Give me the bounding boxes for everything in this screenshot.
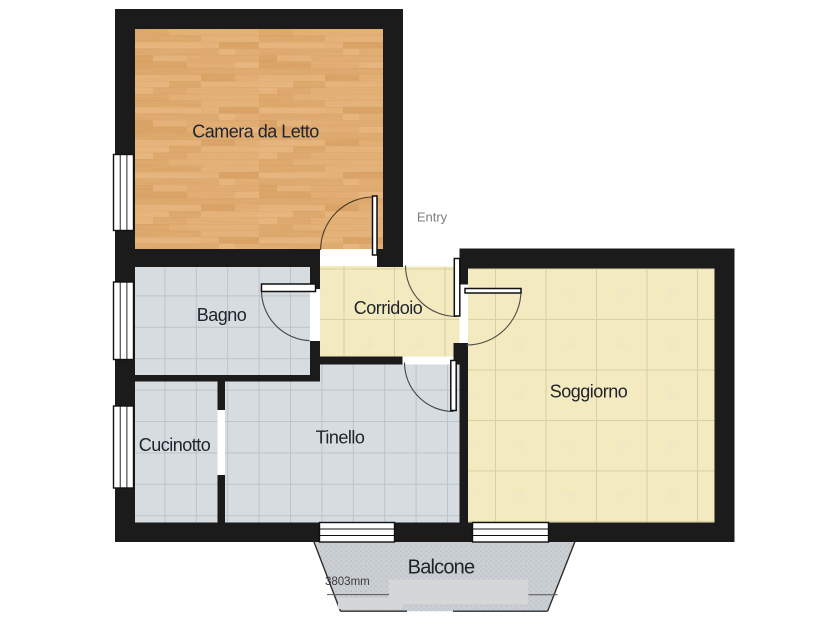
svg-text:Balcone: Balcone — [408, 557, 475, 579]
svg-text:Bagno: Bagno — [197, 305, 247, 325]
svg-text:Corridoio: Corridoio — [354, 298, 423, 318]
svg-text:Entry: Entry — [417, 210, 448, 225]
svg-text:Camera da Letto: Camera da Letto — [192, 122, 319, 142]
svg-text:3803mm: 3803mm — [325, 576, 370, 588]
svg-text:Cucinotto: Cucinotto — [139, 435, 211, 455]
svg-text:Tinello: Tinello — [316, 428, 365, 448]
svg-text:Soggiorno: Soggiorno — [550, 382, 628, 402]
